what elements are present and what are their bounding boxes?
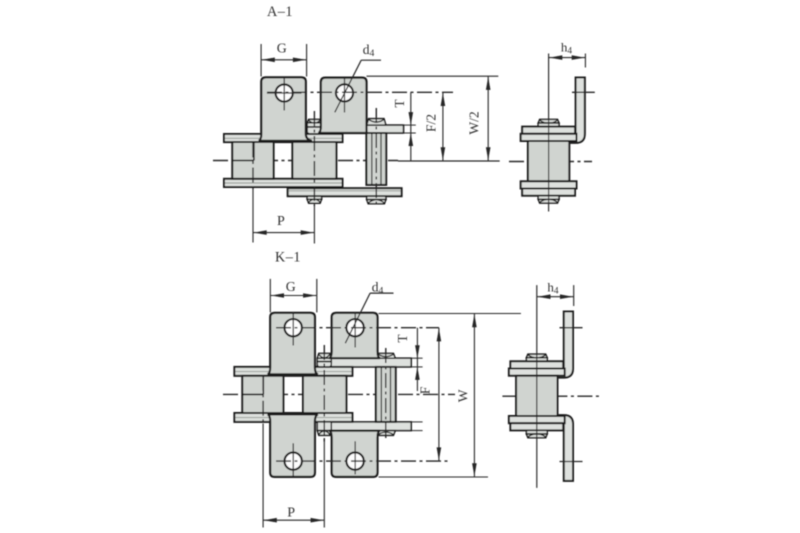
svg-text:K–1: K–1 (275, 249, 301, 265)
svg-text:F: F (418, 386, 433, 394)
svg-text:A–1: A–1 (267, 4, 293, 20)
svg-text:T: T (392, 99, 407, 108)
svg-text:W: W (455, 389, 470, 402)
svg-text:G: G (286, 279, 296, 294)
svg-text:W/2: W/2 (467, 111, 482, 134)
svg-text:P: P (277, 214, 285, 229)
svg-text:P: P (287, 506, 295, 521)
svg-text:T: T (395, 334, 410, 343)
svg-text:F/2: F/2 (424, 114, 439, 132)
svg-text:G: G (277, 40, 287, 55)
